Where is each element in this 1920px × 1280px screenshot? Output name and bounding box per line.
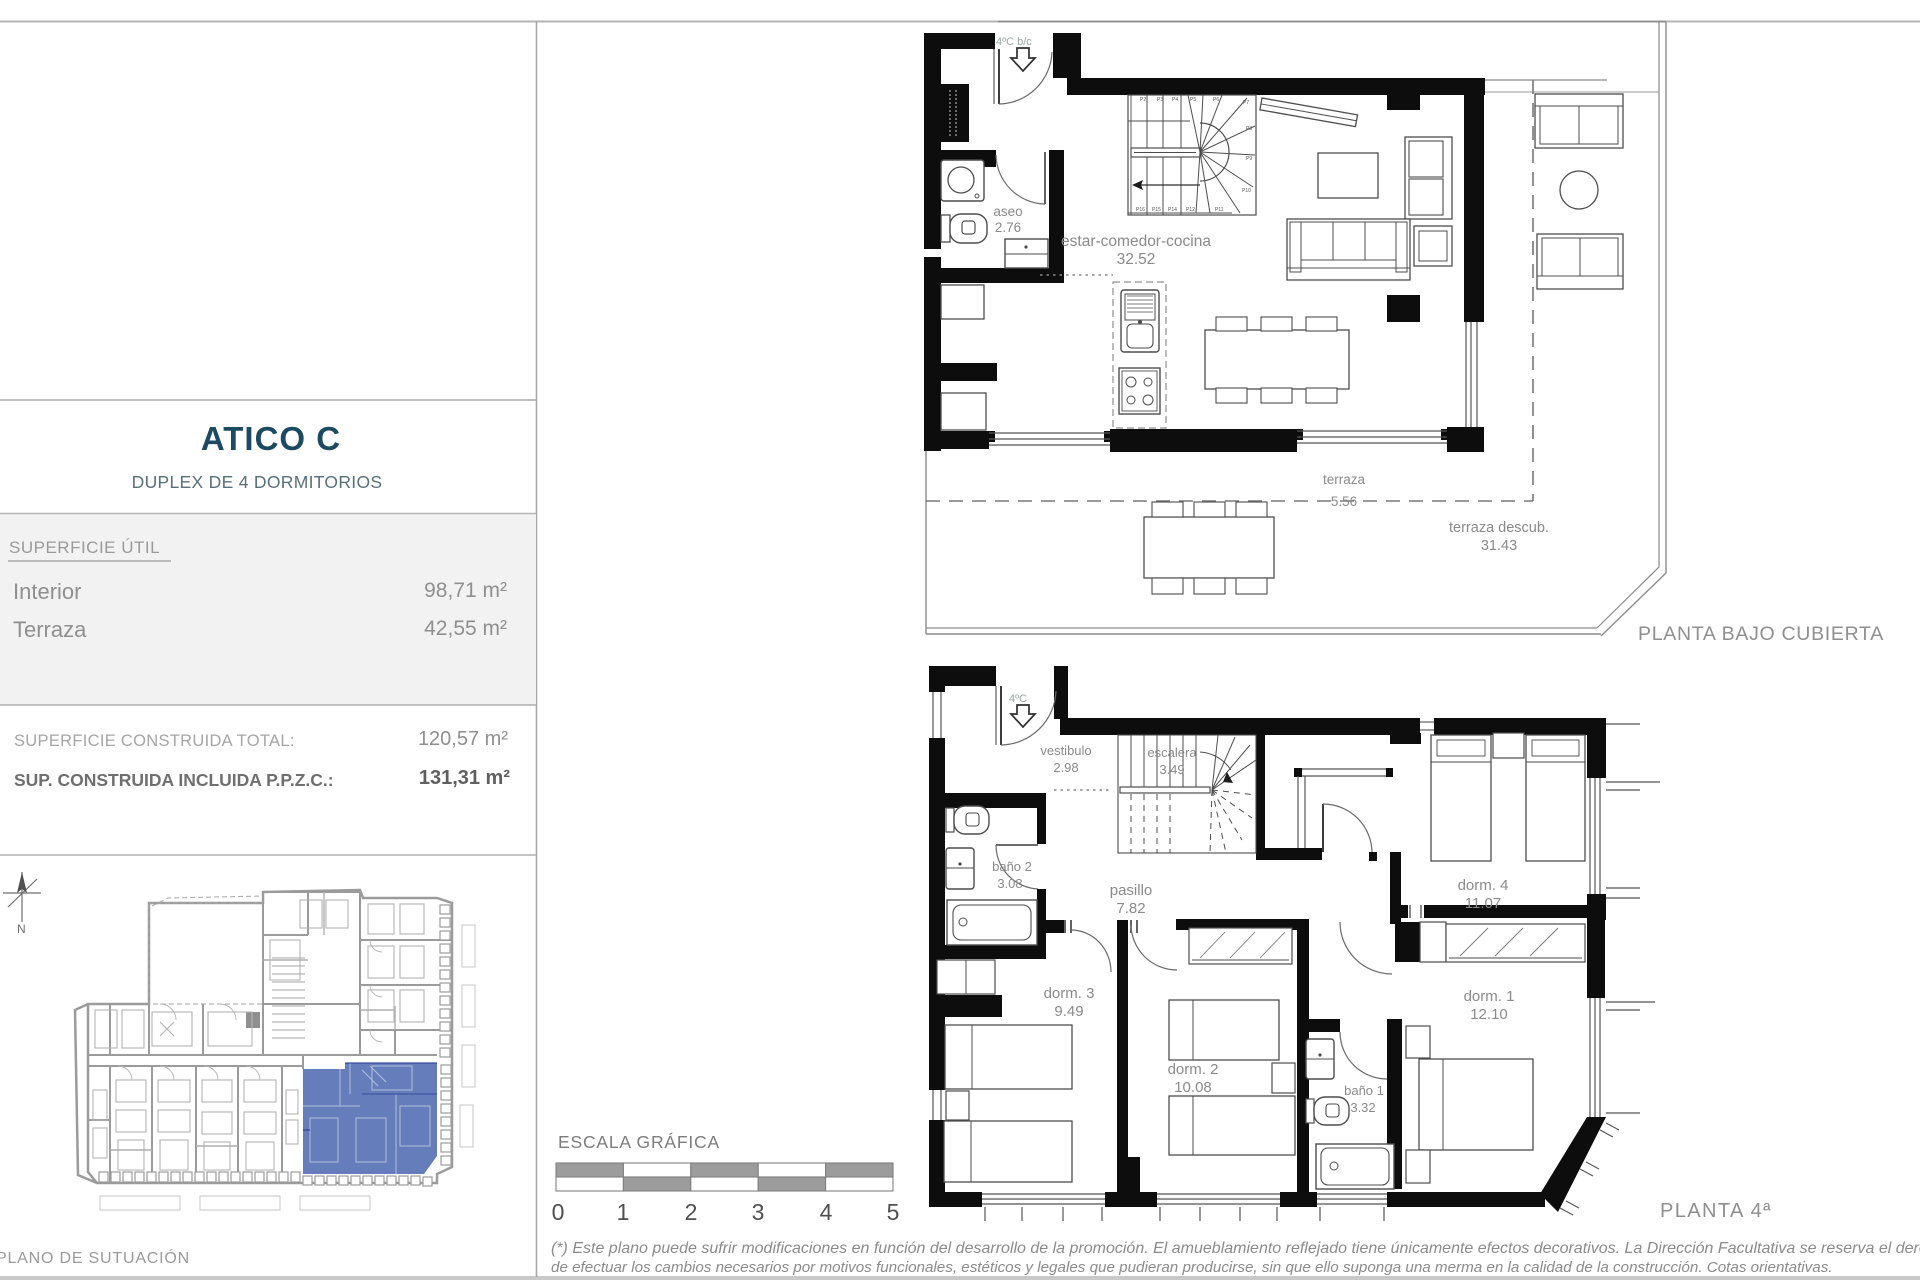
svg-text:N: N: [17, 922, 26, 936]
svg-text:P7: P7: [1243, 100, 1249, 106]
svg-text:terraza descub.: terraza descub.: [1449, 520, 1549, 536]
svg-text:32.52: 32.52: [1117, 251, 1156, 268]
svg-text:SUPERFICIE ÚTIL: SUPERFICIE ÚTIL: [9, 538, 160, 557]
svg-text:(*) Este plano puede sufrir mo: (*) Este plano puede sufrir modificacion…: [551, 1240, 1920, 1257]
svg-text:escalera: escalera: [1147, 745, 1197, 760]
svg-text:dorm. 2: dorm. 2: [1168, 1061, 1219, 1078]
svg-text:P8: P8: [1246, 126, 1252, 132]
svg-text:4ºC b/c: 4ºC b/c: [996, 36, 1032, 48]
svg-text:P16: P16: [1136, 207, 1145, 213]
svg-text:PLANO DE SUTUACIÓN: PLANO DE SUTUACIÓN: [0, 1248, 190, 1267]
svg-text:pasillo: pasillo: [1110, 882, 1153, 899]
svg-text:1: 1: [617, 1199, 630, 1225]
svg-text:5: 5: [887, 1199, 900, 1225]
svg-text:131,31 m²: 131,31 m²: [419, 767, 511, 789]
svg-text:12.10: 12.10: [1470, 1006, 1508, 1023]
svg-text:P5: P5: [1190, 97, 1196, 103]
svg-text:vestibulo: vestibulo: [1040, 743, 1091, 758]
svg-text:ESCALA GRÁFICA: ESCALA GRÁFICA: [558, 1132, 720, 1152]
svg-text:2: 2: [685, 1199, 698, 1225]
svg-text:P4: P4: [1172, 97, 1178, 103]
svg-text:42,55 m²: 42,55 m²: [424, 617, 507, 640]
svg-text:9.49: 9.49: [1054, 1003, 1083, 1020]
svg-text:ATICO C: ATICO C: [201, 420, 341, 457]
svg-text:31.43: 31.43: [1481, 538, 1517, 554]
svg-text:Interior: Interior: [13, 579, 81, 604]
svg-text:4: 4: [820, 1199, 833, 1225]
svg-text:7.82: 7.82: [1116, 900, 1145, 917]
svg-text:3.32: 3.32: [1350, 1100, 1375, 1115]
svg-text:2.76: 2.76: [995, 220, 1021, 235]
svg-text:3.08: 3.08: [997, 876, 1022, 891]
svg-text:baño 2: baño 2: [992, 859, 1032, 874]
svg-text:dorm. 3: dorm. 3: [1044, 985, 1095, 1002]
svg-text:SUP. CONSTRUIDA INCLUIDA P.P.Z: SUP. CONSTRUIDA INCLUIDA P.P.Z.C.:: [14, 770, 334, 790]
svg-text:P10: P10: [1242, 188, 1251, 194]
svg-text:aseo: aseo: [993, 204, 1022, 219]
svg-text:P11: P11: [1215, 207, 1224, 213]
svg-text:terraza: terraza: [1323, 472, 1366, 487]
svg-text:2.98: 2.98: [1053, 760, 1078, 775]
svg-text:P9: P9: [1246, 156, 1252, 162]
svg-text:P15: P15: [1152, 207, 1161, 213]
svg-text:P3: P3: [1157, 97, 1163, 103]
svg-text:dorm. 4: dorm. 4: [1458, 877, 1509, 894]
svg-text:3: 3: [752, 1199, 765, 1225]
svg-text:4ºC: 4ºC: [1009, 693, 1027, 705]
svg-text:0: 0: [552, 1199, 565, 1225]
svg-text:P6: P6: [1213, 97, 1219, 103]
svg-text:120,57 m²: 120,57 m²: [418, 728, 508, 750]
svg-text:98,71 m²: 98,71 m²: [424, 579, 507, 602]
svg-text:dorm. 1: dorm. 1: [1464, 988, 1515, 1005]
svg-text:P14: P14: [1168, 207, 1177, 213]
svg-text:SUPERFICIE CONSTRUIDA TOTAL:: SUPERFICIE CONSTRUIDA TOTAL:: [14, 732, 295, 750]
svg-text:3.49: 3.49: [1159, 762, 1184, 777]
svg-text:11.07: 11.07: [1465, 895, 1501, 912]
svg-text:10.08: 10.08: [1174, 1079, 1212, 1096]
svg-text:baño 1: baño 1: [1344, 1083, 1384, 1098]
svg-text:PLANTA 4ª: PLANTA 4ª: [1660, 1200, 1772, 1222]
svg-text:de efectuar los cambios necesa: de efectuar los cambios necesarios por m…: [551, 1259, 1833, 1276]
svg-text:estar-comedor-cocina: estar-comedor-cocina: [1061, 233, 1211, 250]
svg-text:Terraza: Terraza: [13, 617, 87, 642]
svg-text:5.56: 5.56: [1331, 494, 1357, 509]
svg-text:P12: P12: [1186, 207, 1195, 213]
svg-text:PLANTA BAJO CUBIERTA: PLANTA BAJO CUBIERTA: [1638, 623, 1884, 645]
svg-text:DUPLEX DE 4 DORMITORIOS: DUPLEX DE 4 DORMITORIOS: [132, 472, 383, 492]
svg-text:P2: P2: [1140, 97, 1146, 103]
